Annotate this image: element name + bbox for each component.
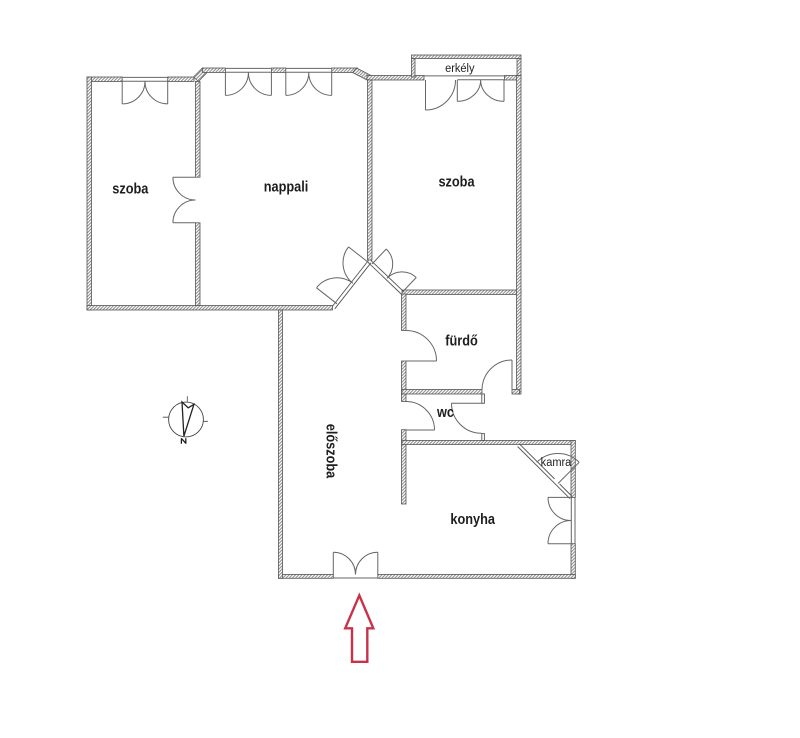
svg-text:nappali: nappali	[264, 177, 309, 194]
svg-text:wc: wc	[436, 403, 454, 420]
svg-text:erkély: erkély	[445, 63, 475, 75]
svg-text:kamra: kamra	[541, 457, 572, 469]
svg-text:szoba: szoba	[112, 179, 148, 196]
svg-text:fürdő: fürdő	[445, 331, 478, 348]
svg-text:konyha: konyha	[450, 510, 495, 527]
svg-text:előszoba: előszoba	[323, 424, 340, 479]
svg-text:szoba: szoba	[438, 172, 474, 189]
